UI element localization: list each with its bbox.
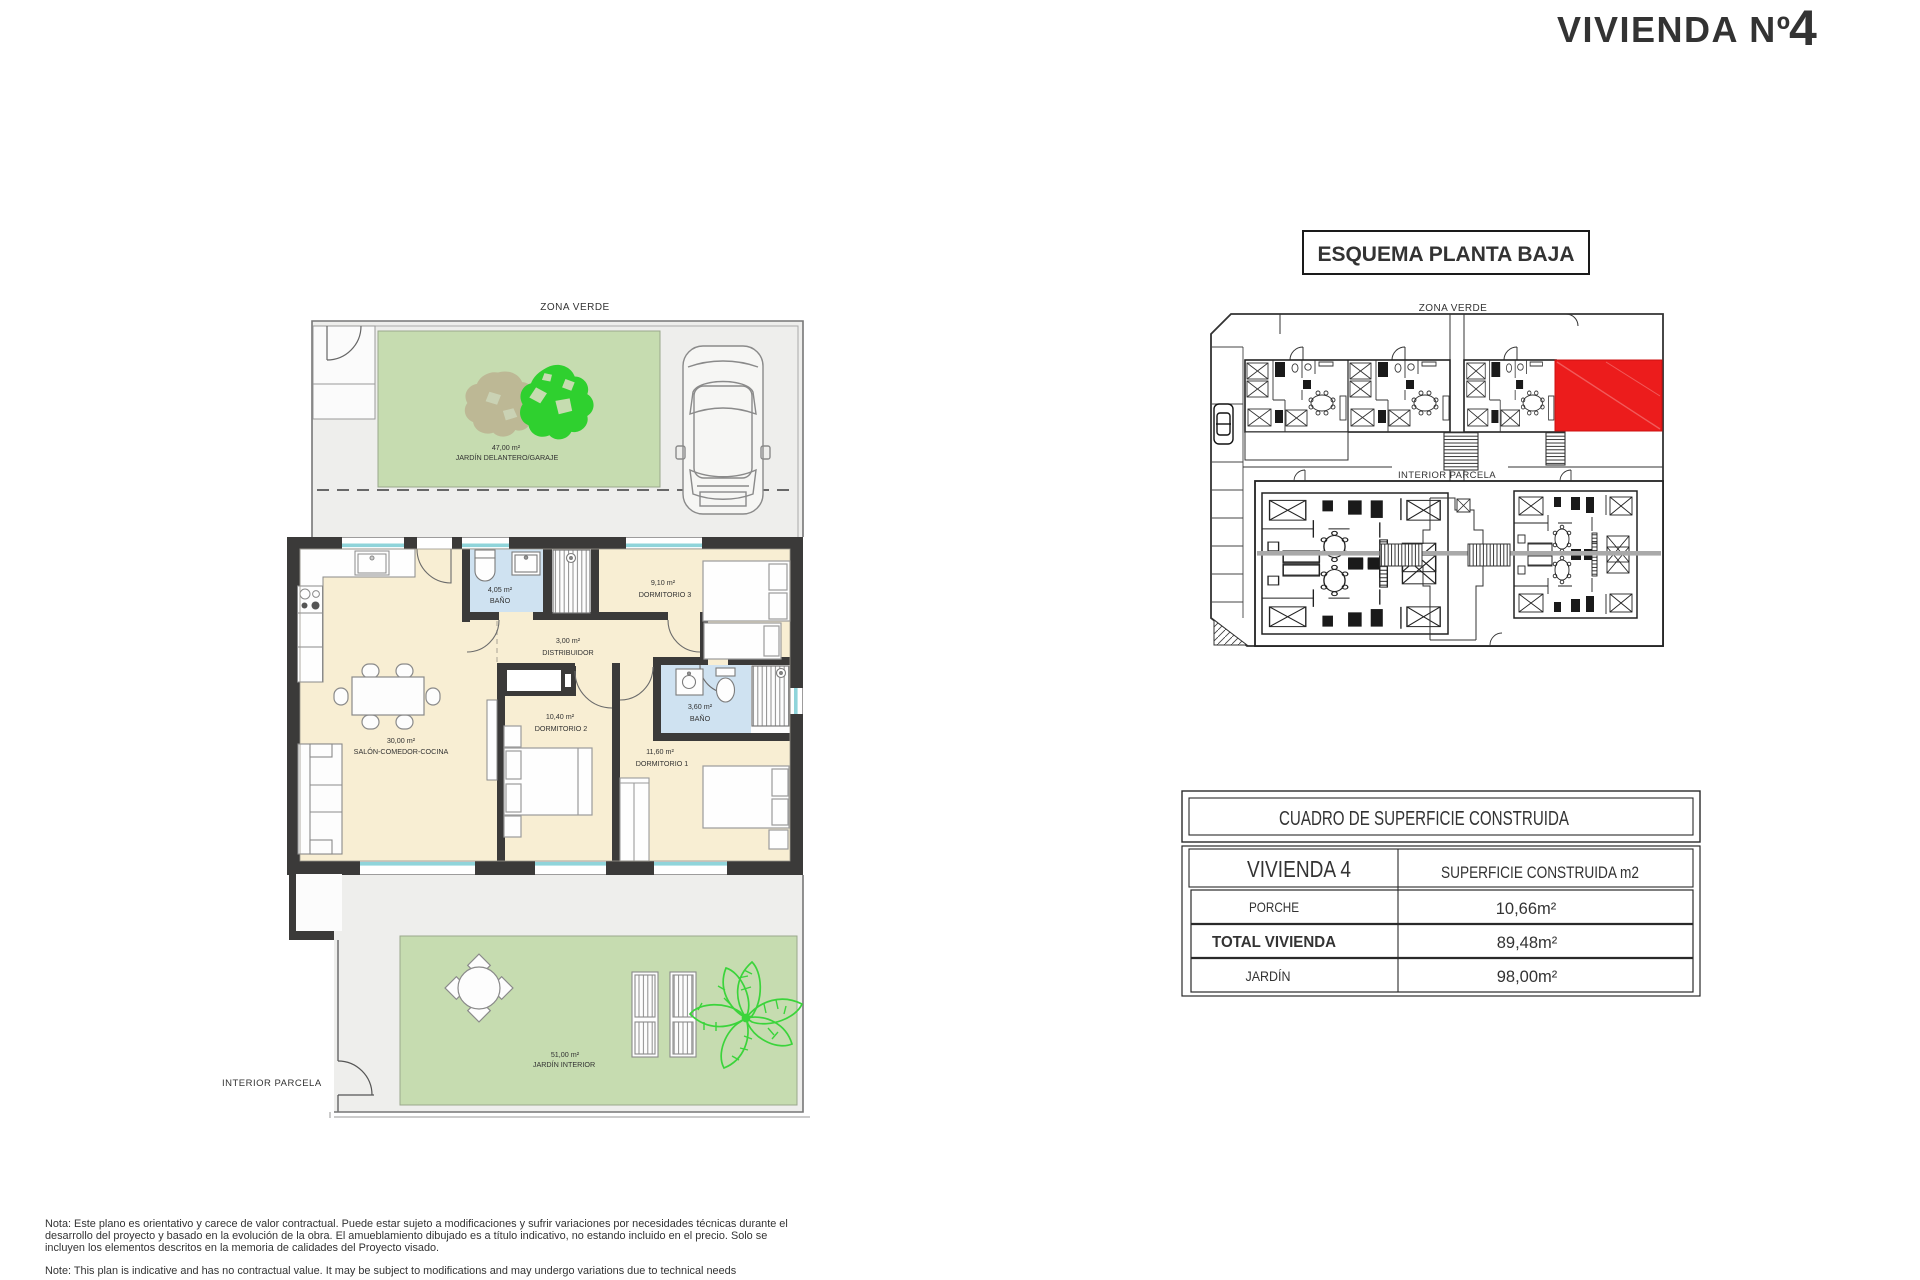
svg-text:10,66m²: 10,66m² xyxy=(1496,900,1557,918)
svg-text:desarrollo del proyecto y basa: desarrollo del proyecto y basado en la e… xyxy=(45,1230,767,1242)
svg-text:30,00 m²: 30,00 m² xyxy=(387,736,416,745)
svg-text:ZONA VERDE: ZONA VERDE xyxy=(540,302,609,313)
svg-text:3,60 m²: 3,60 m² xyxy=(688,702,713,711)
svg-text:INTERIOR PARCELA: INTERIOR PARCELA xyxy=(222,1078,322,1089)
svg-text:incluyen los elementos descrit: incluyen los elementos descritos en la m… xyxy=(45,1242,439,1254)
svg-text:DORMITORIO 2: DORMITORIO 2 xyxy=(535,724,588,733)
svg-text:10,40 m²: 10,40 m² xyxy=(546,712,575,721)
svg-text:11,60 m²: 11,60 m² xyxy=(646,747,674,756)
svg-text:SUPERFICIE CONSTRUIDA m2: SUPERFICIE CONSTRUIDA m2 xyxy=(1441,864,1639,882)
svg-text:JARDÍN: JARDÍN xyxy=(1246,968,1291,984)
svg-text:BAÑO: BAÑO xyxy=(690,714,711,723)
svg-text:9,10 m²: 9,10 m² xyxy=(651,578,676,587)
svg-text:VIVIENDA 4: VIVIENDA 4 xyxy=(1247,856,1351,882)
svg-text:Note: This plan is indicative: Note: This plan is indicative and has no… xyxy=(45,1265,737,1277)
svg-text:INTERIOR PARCELA: INTERIOR PARCELA xyxy=(1398,470,1496,481)
svg-text:4,05 m²: 4,05 m² xyxy=(488,585,513,594)
svg-text:89,48m²: 89,48m² xyxy=(1497,934,1558,952)
svg-text:DORMITORIO 3: DORMITORIO 3 xyxy=(639,590,692,599)
svg-text:PORCHE: PORCHE xyxy=(1249,899,1299,915)
svg-text:ZONA VERDE: ZONA VERDE xyxy=(1419,303,1487,314)
svg-text:JARDÍN DELANTERO/GARAJE: JARDÍN DELANTERO/GARAJE xyxy=(456,453,559,462)
svg-text:CUADRO DE SUPERFICIE CONSTRUID: CUADRO DE SUPERFICIE CONSTRUIDA xyxy=(1279,808,1569,830)
svg-text:98,00m²: 98,00m² xyxy=(1497,968,1558,986)
svg-text:ESQUEMA PLANTA BAJA: ESQUEMA PLANTA BAJA xyxy=(1317,243,1574,266)
svg-text:3,00 m²: 3,00 m² xyxy=(556,636,581,645)
svg-text:JARDÍN INTERIOR: JARDÍN INTERIOR xyxy=(533,1060,595,1069)
svg-text:VIVIENDA Nº: VIVIENDA Nº xyxy=(1557,9,1791,50)
svg-text:4: 4 xyxy=(1789,0,1817,56)
svg-text:TOTAL VIVIENDA: TOTAL VIVIENDA xyxy=(1212,934,1336,951)
svg-text:BAÑO: BAÑO xyxy=(490,596,511,605)
svg-text:SALÓN-COMEDOR-COCINA: SALÓN-COMEDOR-COCINA xyxy=(354,747,449,756)
svg-text:47,00 m²: 47,00 m² xyxy=(492,443,521,452)
svg-text:Nota: Este plano es orientativ: Nota: Este plano es orientativo y carece… xyxy=(45,1218,788,1230)
svg-text:51,00 m²: 51,00 m² xyxy=(551,1050,580,1059)
svg-text:DORMITORIO 1: DORMITORIO 1 xyxy=(636,759,689,768)
svg-text:DISTRIBUIDOR: DISTRIBUIDOR xyxy=(542,648,594,657)
